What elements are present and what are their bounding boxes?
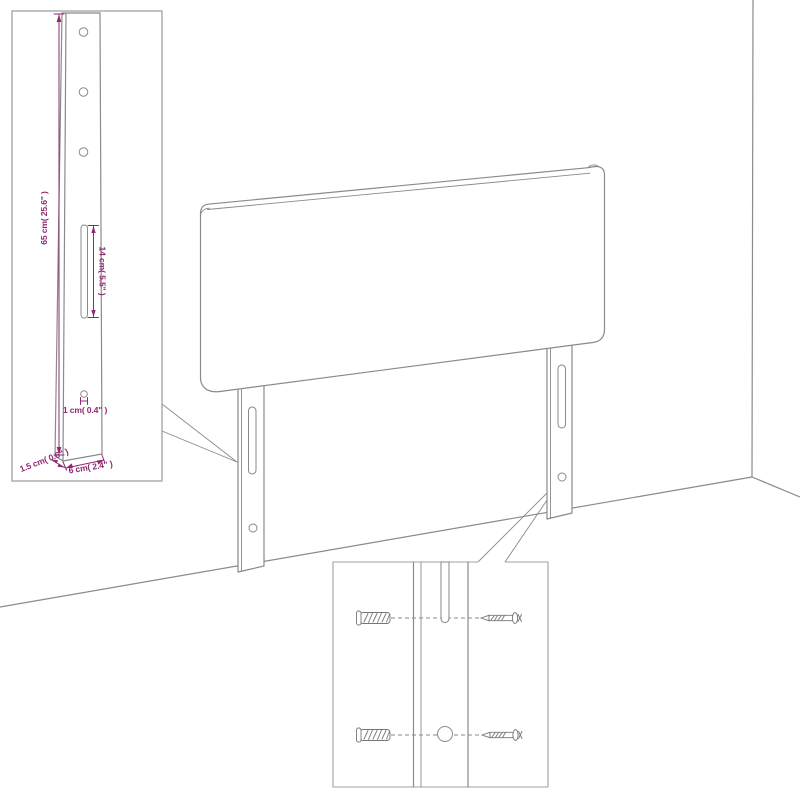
right-leg-slot xyxy=(558,365,566,428)
wall-plug-icon xyxy=(357,728,391,742)
leg-detail-small-hole xyxy=(81,391,88,398)
leg-detail-hole-3 xyxy=(79,148,88,157)
left-leg xyxy=(238,383,264,572)
leg-detail-leader-lines xyxy=(162,404,237,462)
headboard-diagram: 65 cm( 25.6" ) 14 cm( 5.5" ) 1 cm( 0.4" … xyxy=(0,0,800,800)
left-leg-hole xyxy=(249,524,257,532)
wall-corner-line xyxy=(752,0,753,477)
left-leg-slot xyxy=(249,407,257,474)
leg-detail-slot xyxy=(81,225,88,318)
hole-dimension-label: 1 cm( 0.4" ) xyxy=(63,405,108,415)
mounting-detail-slot xyxy=(441,562,449,623)
leg-detail-hole-2 xyxy=(79,88,88,97)
right-leg-hole xyxy=(558,473,566,481)
headboard-panel xyxy=(201,165,605,392)
floor-line-right xyxy=(752,477,800,497)
leg-detail-hole-1 xyxy=(79,28,88,37)
headboard-outline xyxy=(201,166,605,391)
leg-detail-inset: 65 cm( 25.6" ) 14 cm( 5.5" ) 1 cm( 0.4" … xyxy=(12,11,162,481)
right-leg xyxy=(547,342,572,519)
slot-dimension-label: 14 cm( 5.5" ) xyxy=(98,247,108,296)
mounting-detail-inset xyxy=(333,562,548,787)
diagram-canvas: 65 cm( 25.6" ) 14 cm( 5.5" ) 1 cm( 0.4" … xyxy=(0,0,800,800)
wall-plug-icon xyxy=(357,611,391,625)
height-dimension-label: 65 cm( 25.6" ) xyxy=(39,191,49,245)
mounting-detail-hole xyxy=(438,727,453,742)
